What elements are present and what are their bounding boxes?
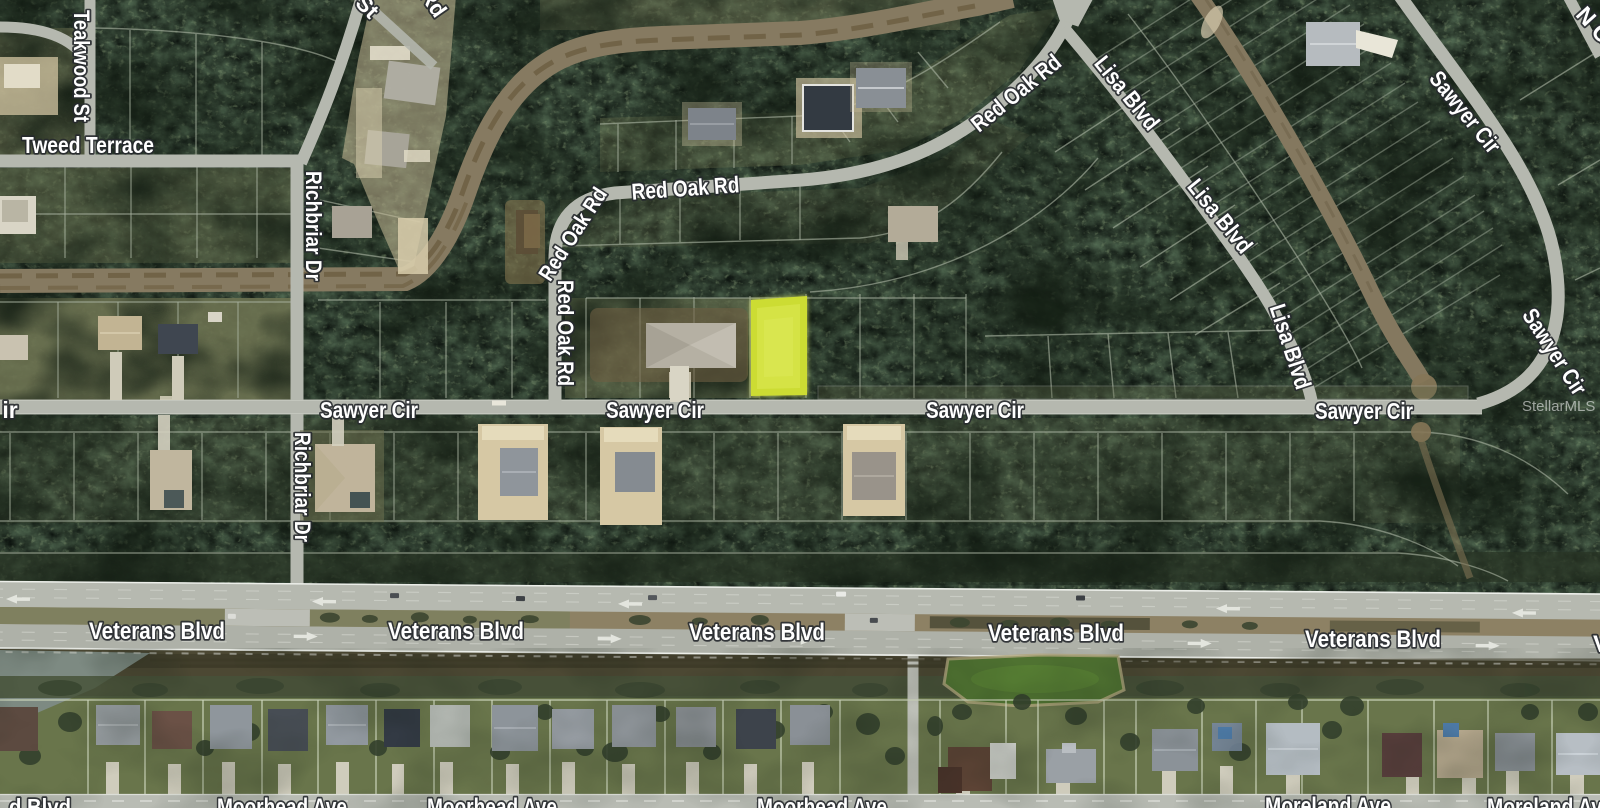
svg-text:Veterans Blvd: Veterans Blvd <box>89 618 225 645</box>
svg-text:Moreland Ave: Moreland Ave <box>1487 794 1600 808</box>
svg-text:Moorhead Ave: Moorhead Ave <box>757 794 887 808</box>
svg-text:Sawyer Cir: Sawyer Cir <box>320 397 418 423</box>
svg-text:Veterans Blvd: Veterans Blvd <box>388 618 524 645</box>
svg-text:Moorhead Ave: Moorhead Ave <box>217 794 347 808</box>
svg-text:Red Oak Rd: Red Oak Rd <box>553 280 578 386</box>
svg-text:Sawyer Cir: Sawyer Cir <box>1315 398 1413 424</box>
svg-text:Tweed Terrace: Tweed Terrace <box>22 132 154 158</box>
svg-text:ir: ir <box>2 397 17 423</box>
svg-text:Richbriar Dr: Richbriar Dr <box>290 432 315 542</box>
svg-text:Veterans Blvd: Veterans Blvd <box>689 619 825 646</box>
svg-text:Moorhead Ave: Moorhead Ave <box>427 794 557 808</box>
svg-text:d Blvd: d Blvd <box>9 794 71 808</box>
svg-text:Veterans Blvd: Veterans Blvd <box>1305 626 1441 653</box>
svg-text:Sawyer Cir: Sawyer Cir <box>606 397 704 423</box>
svg-text:Moreland Ave: Moreland Ave <box>1265 793 1391 808</box>
svg-text:Veterans Blvd: Veterans Blvd <box>988 620 1124 647</box>
svg-text:Sawyer Cir: Sawyer Cir <box>926 397 1024 423</box>
svg-text:Teakwood St: Teakwood St <box>69 10 94 123</box>
svg-text:StellarMLS: StellarMLS <box>1522 398 1595 415</box>
svg-text:V: V <box>1593 631 1600 658</box>
svg-text:Richbriar Dr: Richbriar Dr <box>301 171 326 281</box>
